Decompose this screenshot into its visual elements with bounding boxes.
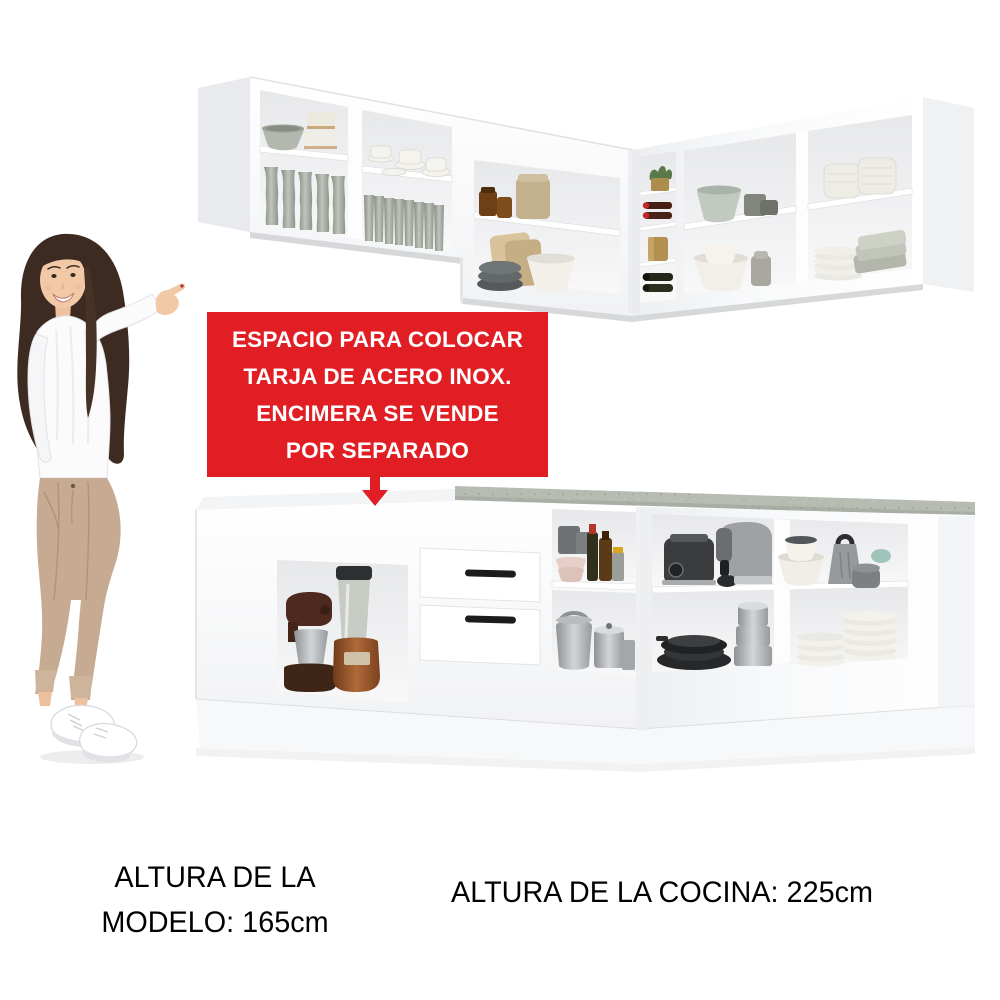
gold-canister xyxy=(648,237,668,261)
cabinet-side-panel xyxy=(923,97,974,292)
base-cabinets xyxy=(196,486,975,772)
drawer xyxy=(420,605,540,665)
base-cabinet-right-run xyxy=(636,507,975,764)
steel-pot-stack xyxy=(734,602,772,666)
upper-cabinet-right-run xyxy=(628,97,974,322)
caption-model-height-line2: MODELO: 165cm xyxy=(62,900,367,945)
callout-line: TARJA DE ACERO INOX. xyxy=(207,358,548,395)
callout-line: ESPACIO PARA COLOCAR xyxy=(207,321,548,358)
caption-model-height: ALTURA DE LA MODELO: 165cm xyxy=(62,855,367,945)
wine-rack xyxy=(640,151,676,303)
trousers xyxy=(35,478,121,700)
down-arrow-icon xyxy=(357,477,393,507)
cabinet-divider xyxy=(348,107,362,240)
pot-with-lid xyxy=(594,623,624,668)
callout-line: POR SEPARADO xyxy=(207,432,548,469)
kettle xyxy=(556,613,592,670)
tan-jar xyxy=(516,174,550,219)
pointing-hand xyxy=(156,283,186,315)
waist-button xyxy=(71,484,75,488)
drawer-handle xyxy=(465,615,516,623)
caption-kitchen-height: ALTURA DE LA COCINA: 225cm xyxy=(443,876,881,910)
white-canisters xyxy=(304,112,337,150)
caption-model-height-line1: ALTURA DE LA xyxy=(62,855,367,900)
callout-box: ESPACIO PARA COLOCAR TARJA DE ACERO INOX… xyxy=(207,312,548,477)
nail-polish xyxy=(180,284,183,287)
coffee-machine xyxy=(716,522,772,587)
trouser-cuff xyxy=(69,676,92,698)
drawer-handle xyxy=(465,569,516,577)
dark-bowls xyxy=(477,261,523,291)
teal-bowl xyxy=(871,549,891,563)
model-photo xyxy=(17,234,185,764)
upper-wall-cabinets xyxy=(198,77,974,322)
cabinet-side-panel xyxy=(938,516,975,708)
base-cabinet-left-run xyxy=(196,501,640,764)
drinking-glasses xyxy=(264,167,345,234)
ankle xyxy=(38,692,52,706)
grey-jar xyxy=(751,251,771,286)
cabinet-side-panel xyxy=(198,77,250,232)
scene-graphic xyxy=(0,0,1000,1000)
toaster xyxy=(662,534,716,585)
caption-kitchen-height-text: ALTURA DE LA COCINA: 225cm xyxy=(443,876,881,910)
white-ribbed-bowls xyxy=(824,158,896,198)
canister xyxy=(622,640,635,670)
grey-canister xyxy=(852,564,880,589)
product-image: ESPACIO PARA COLOCAR TARJA DE ACERO INOX… xyxy=(0,0,1000,1000)
trouser-cuff xyxy=(35,670,56,692)
upper-cabinet-left-run xyxy=(198,77,632,322)
cabinet-divider xyxy=(796,131,808,282)
cast-iron-pans xyxy=(656,635,731,670)
plate-stack xyxy=(797,633,845,667)
plate-stack xyxy=(843,611,897,661)
callout-line: ENCIMERA SE VENDE xyxy=(207,395,548,432)
